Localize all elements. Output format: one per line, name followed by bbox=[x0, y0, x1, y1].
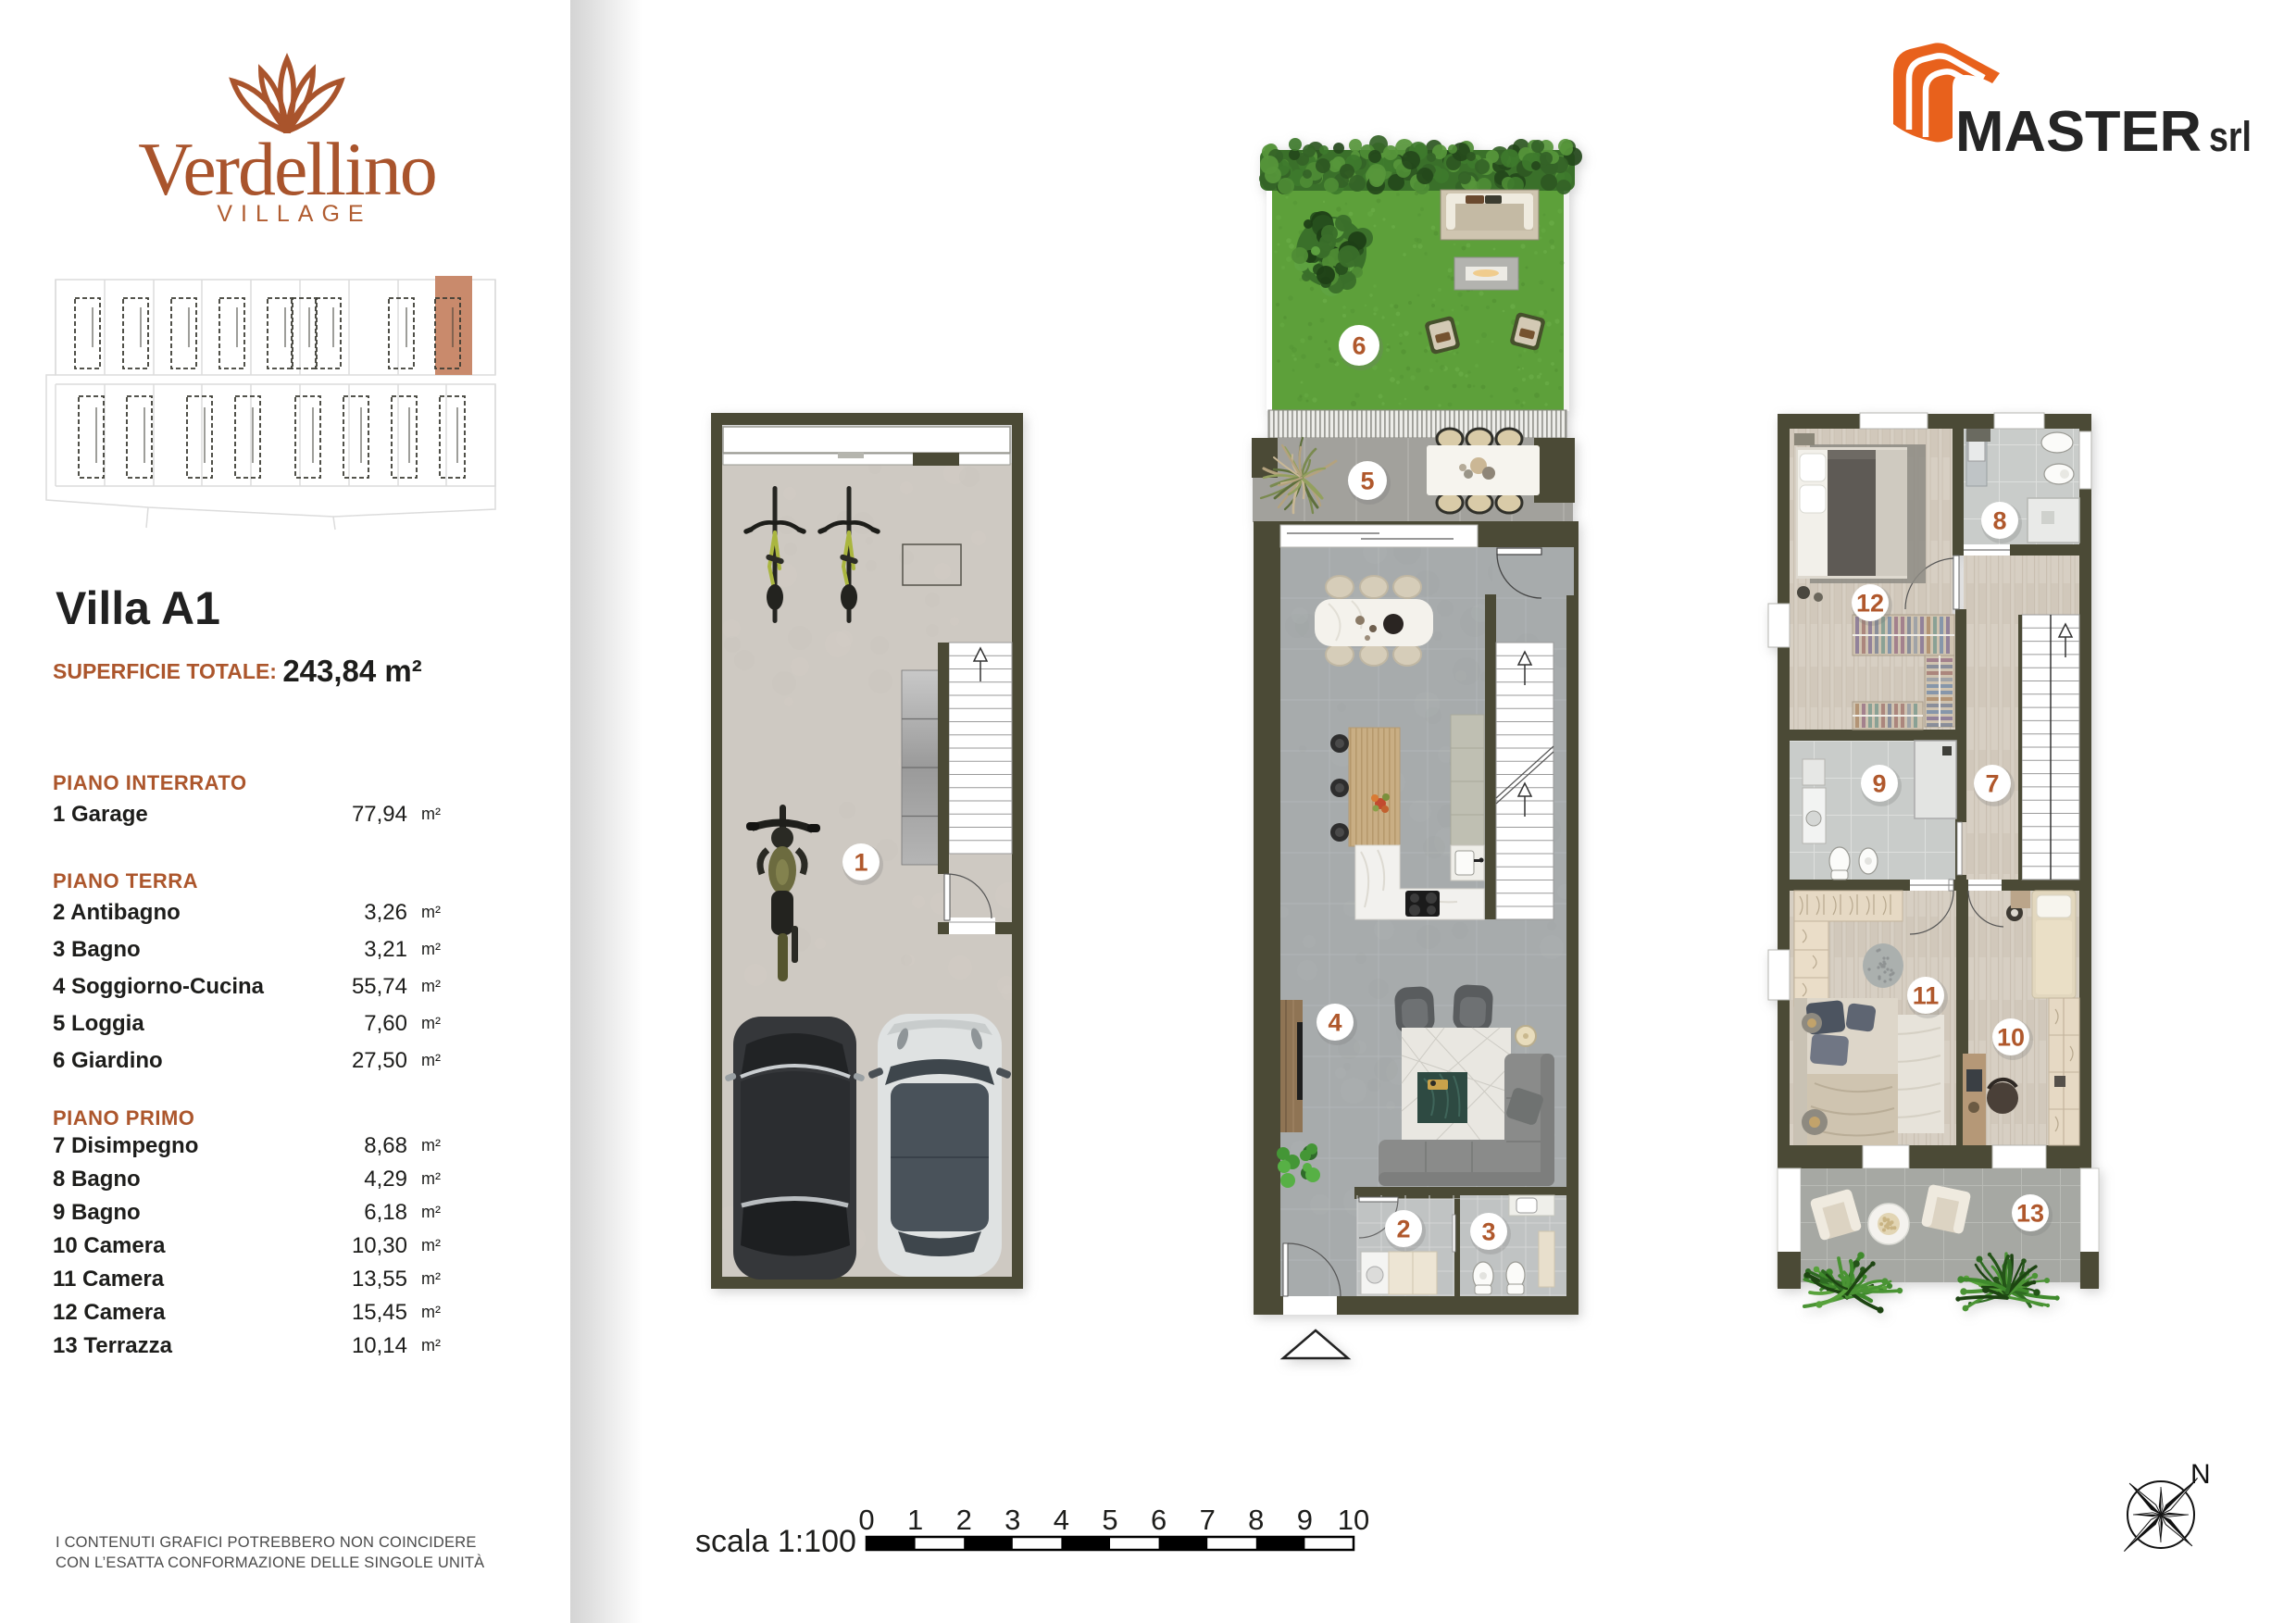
svg-text:8: 8 bbox=[1248, 1504, 1264, 1536]
svg-text:0: 0 bbox=[858, 1504, 874, 1536]
svg-text:3: 3 bbox=[1481, 1218, 1495, 1246]
svg-text:2: 2 bbox=[1396, 1216, 1410, 1243]
svg-text:2: 2 bbox=[956, 1504, 972, 1536]
svg-text:10: 10 bbox=[1997, 1024, 2025, 1052]
svg-text:4: 4 bbox=[1328, 1009, 1341, 1037]
svg-text:9: 9 bbox=[1297, 1504, 1313, 1536]
svg-text:8: 8 bbox=[1992, 507, 2006, 535]
svg-text:10: 10 bbox=[1338, 1504, 1369, 1536]
svg-text:3: 3 bbox=[1004, 1504, 1020, 1536]
svg-text:13: 13 bbox=[2016, 1200, 2044, 1228]
svg-text:1: 1 bbox=[854, 849, 867, 877]
svg-text:7: 7 bbox=[1985, 770, 1999, 798]
svg-text:12: 12 bbox=[1856, 590, 1884, 618]
svg-text:srl: srl bbox=[2209, 113, 2252, 160]
svg-text:6: 6 bbox=[1151, 1504, 1167, 1536]
svg-text:9: 9 bbox=[1872, 770, 1886, 798]
svg-text:MASTER: MASTER bbox=[1955, 100, 2202, 162]
svg-text:7: 7 bbox=[1200, 1504, 1216, 1536]
svg-text:1: 1 bbox=[907, 1504, 923, 1536]
svg-text:scala 1:100: scala 1:100 bbox=[695, 1524, 856, 1559]
svg-text:N: N bbox=[2190, 1459, 2211, 1490]
svg-text:5: 5 bbox=[1102, 1504, 1117, 1536]
svg-text:6: 6 bbox=[1352, 332, 1366, 360]
svg-text:11: 11 bbox=[1913, 982, 1940, 1010]
svg-text:4: 4 bbox=[1054, 1504, 1069, 1536]
svg-text:5: 5 bbox=[1360, 468, 1374, 495]
